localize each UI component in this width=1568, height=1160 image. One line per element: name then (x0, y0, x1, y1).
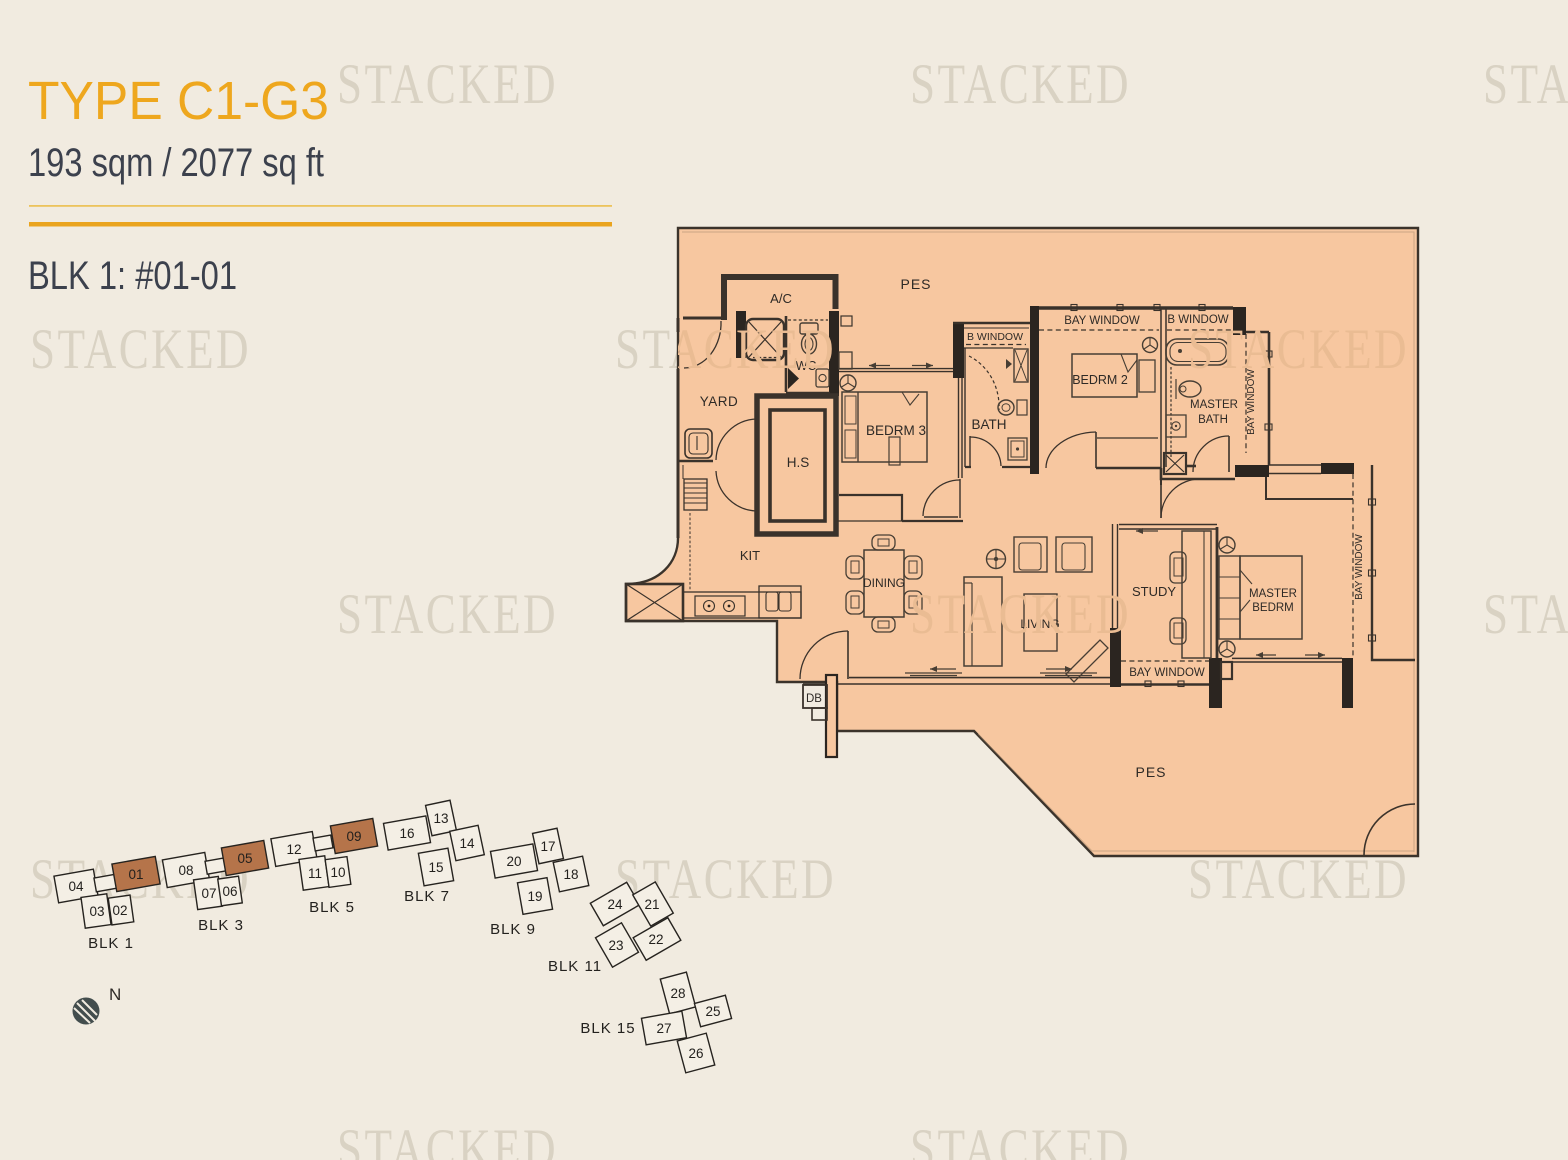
svg-text:A/C: A/C (770, 291, 792, 306)
svg-text:STACKED: STACKED (1188, 318, 1409, 381)
svg-text:STUDY: STUDY (1132, 584, 1176, 599)
svg-text:N: N (109, 985, 121, 1004)
svg-text:17: 17 (540, 839, 555, 854)
svg-text:STACKED: STACKED (1483, 53, 1568, 116)
svg-text:22: 22 (648, 932, 663, 947)
svg-text:12: 12 (286, 842, 301, 857)
svg-text:BLK 11: BLK 11 (548, 958, 602, 975)
svg-text:10: 10 (330, 865, 345, 880)
svg-text:24: 24 (607, 897, 623, 912)
svg-text:BLK 1: #01-01: BLK 1: #01-01 (28, 254, 237, 298)
svg-text:STACKED: STACKED (910, 1118, 1131, 1160)
svg-text:STACKED: STACKED (910, 583, 1131, 646)
svg-text:03: 03 (89, 904, 104, 919)
svg-text:H.S: H.S (787, 455, 810, 470)
svg-text:27: 27 (656, 1021, 671, 1036)
svg-text:26: 26 (688, 1046, 703, 1061)
svg-text:BAY WINDOW: BAY WINDOW (1064, 315, 1140, 327)
svg-text:BATH: BATH (971, 417, 1006, 432)
svg-text:02: 02 (112, 903, 127, 918)
svg-text:BATH: BATH (1198, 414, 1228, 426)
svg-text:11: 11 (308, 866, 322, 881)
svg-text:BAY WINDOW: BAY WINDOW (1354, 534, 1365, 600)
svg-text:193 sqm / 2077 sq ft: 193 sqm / 2077 sq ft (28, 141, 324, 185)
svg-text:STACKED: STACKED (910, 53, 1131, 116)
svg-text:KIT: KIT (740, 548, 760, 563)
svg-text:PES: PES (900, 276, 931, 292)
svg-text:BEDRM 2: BEDRM 2 (1072, 373, 1128, 387)
svg-text:07: 07 (201, 886, 216, 901)
svg-text:08: 08 (178, 863, 193, 878)
svg-text:STACKED: STACKED (337, 583, 558, 646)
svg-text:09: 09 (346, 829, 361, 844)
svg-text:BLK 7: BLK 7 (404, 888, 450, 905)
svg-text:BLK 5: BLK 5 (309, 899, 355, 916)
svg-text:BLK 1: BLK 1 (88, 935, 134, 952)
svg-text:BAY WINDOW: BAY WINDOW (1129, 667, 1205, 679)
svg-text:MASTER: MASTER (1190, 399, 1238, 411)
svg-text:20: 20 (506, 854, 521, 869)
svg-text:BLK 9: BLK 9 (490, 921, 536, 938)
svg-text:06: 06 (222, 884, 237, 899)
svg-text:STACKED: STACKED (30, 318, 251, 381)
svg-text:25: 25 (705, 1004, 720, 1019)
svg-text:BEDRM 3: BEDRM 3 (866, 423, 926, 438)
svg-text:B WINDOW: B WINDOW (967, 331, 1023, 343)
svg-text:YARD: YARD (700, 394, 739, 409)
svg-text:STACKED: STACKED (1188, 848, 1409, 911)
svg-text:23: 23 (608, 938, 623, 953)
svg-text:01: 01 (128, 867, 143, 882)
svg-text:STACKED: STACKED (337, 1118, 558, 1160)
svg-text:19: 19 (527, 889, 542, 904)
svg-text:BLK 3: BLK 3 (198, 917, 244, 934)
svg-text:28: 28 (670, 986, 685, 1001)
svg-text:14: 14 (459, 836, 475, 851)
svg-text:04: 04 (68, 879, 84, 894)
svg-text:21: 21 (644, 897, 659, 912)
svg-text:DB: DB (806, 693, 822, 705)
svg-text:05: 05 (237, 851, 252, 866)
svg-text:BEDRM: BEDRM (1252, 602, 1294, 614)
svg-text:15: 15 (428, 860, 443, 875)
svg-text:PES: PES (1135, 764, 1166, 780)
svg-text:16: 16 (399, 826, 414, 841)
svg-text:18: 18 (563, 867, 578, 882)
svg-text:BLK 15: BLK 15 (580, 1020, 635, 1037)
svg-text:STACKED: STACKED (337, 53, 558, 116)
svg-text:TYPE C1-G3: TYPE C1-G3 (28, 71, 329, 131)
svg-text:STACKED: STACKED (1483, 583, 1568, 646)
svg-text:DINING: DINING (863, 576, 905, 590)
svg-text:MASTER: MASTER (1249, 588, 1297, 600)
svg-text:13: 13 (433, 811, 448, 826)
